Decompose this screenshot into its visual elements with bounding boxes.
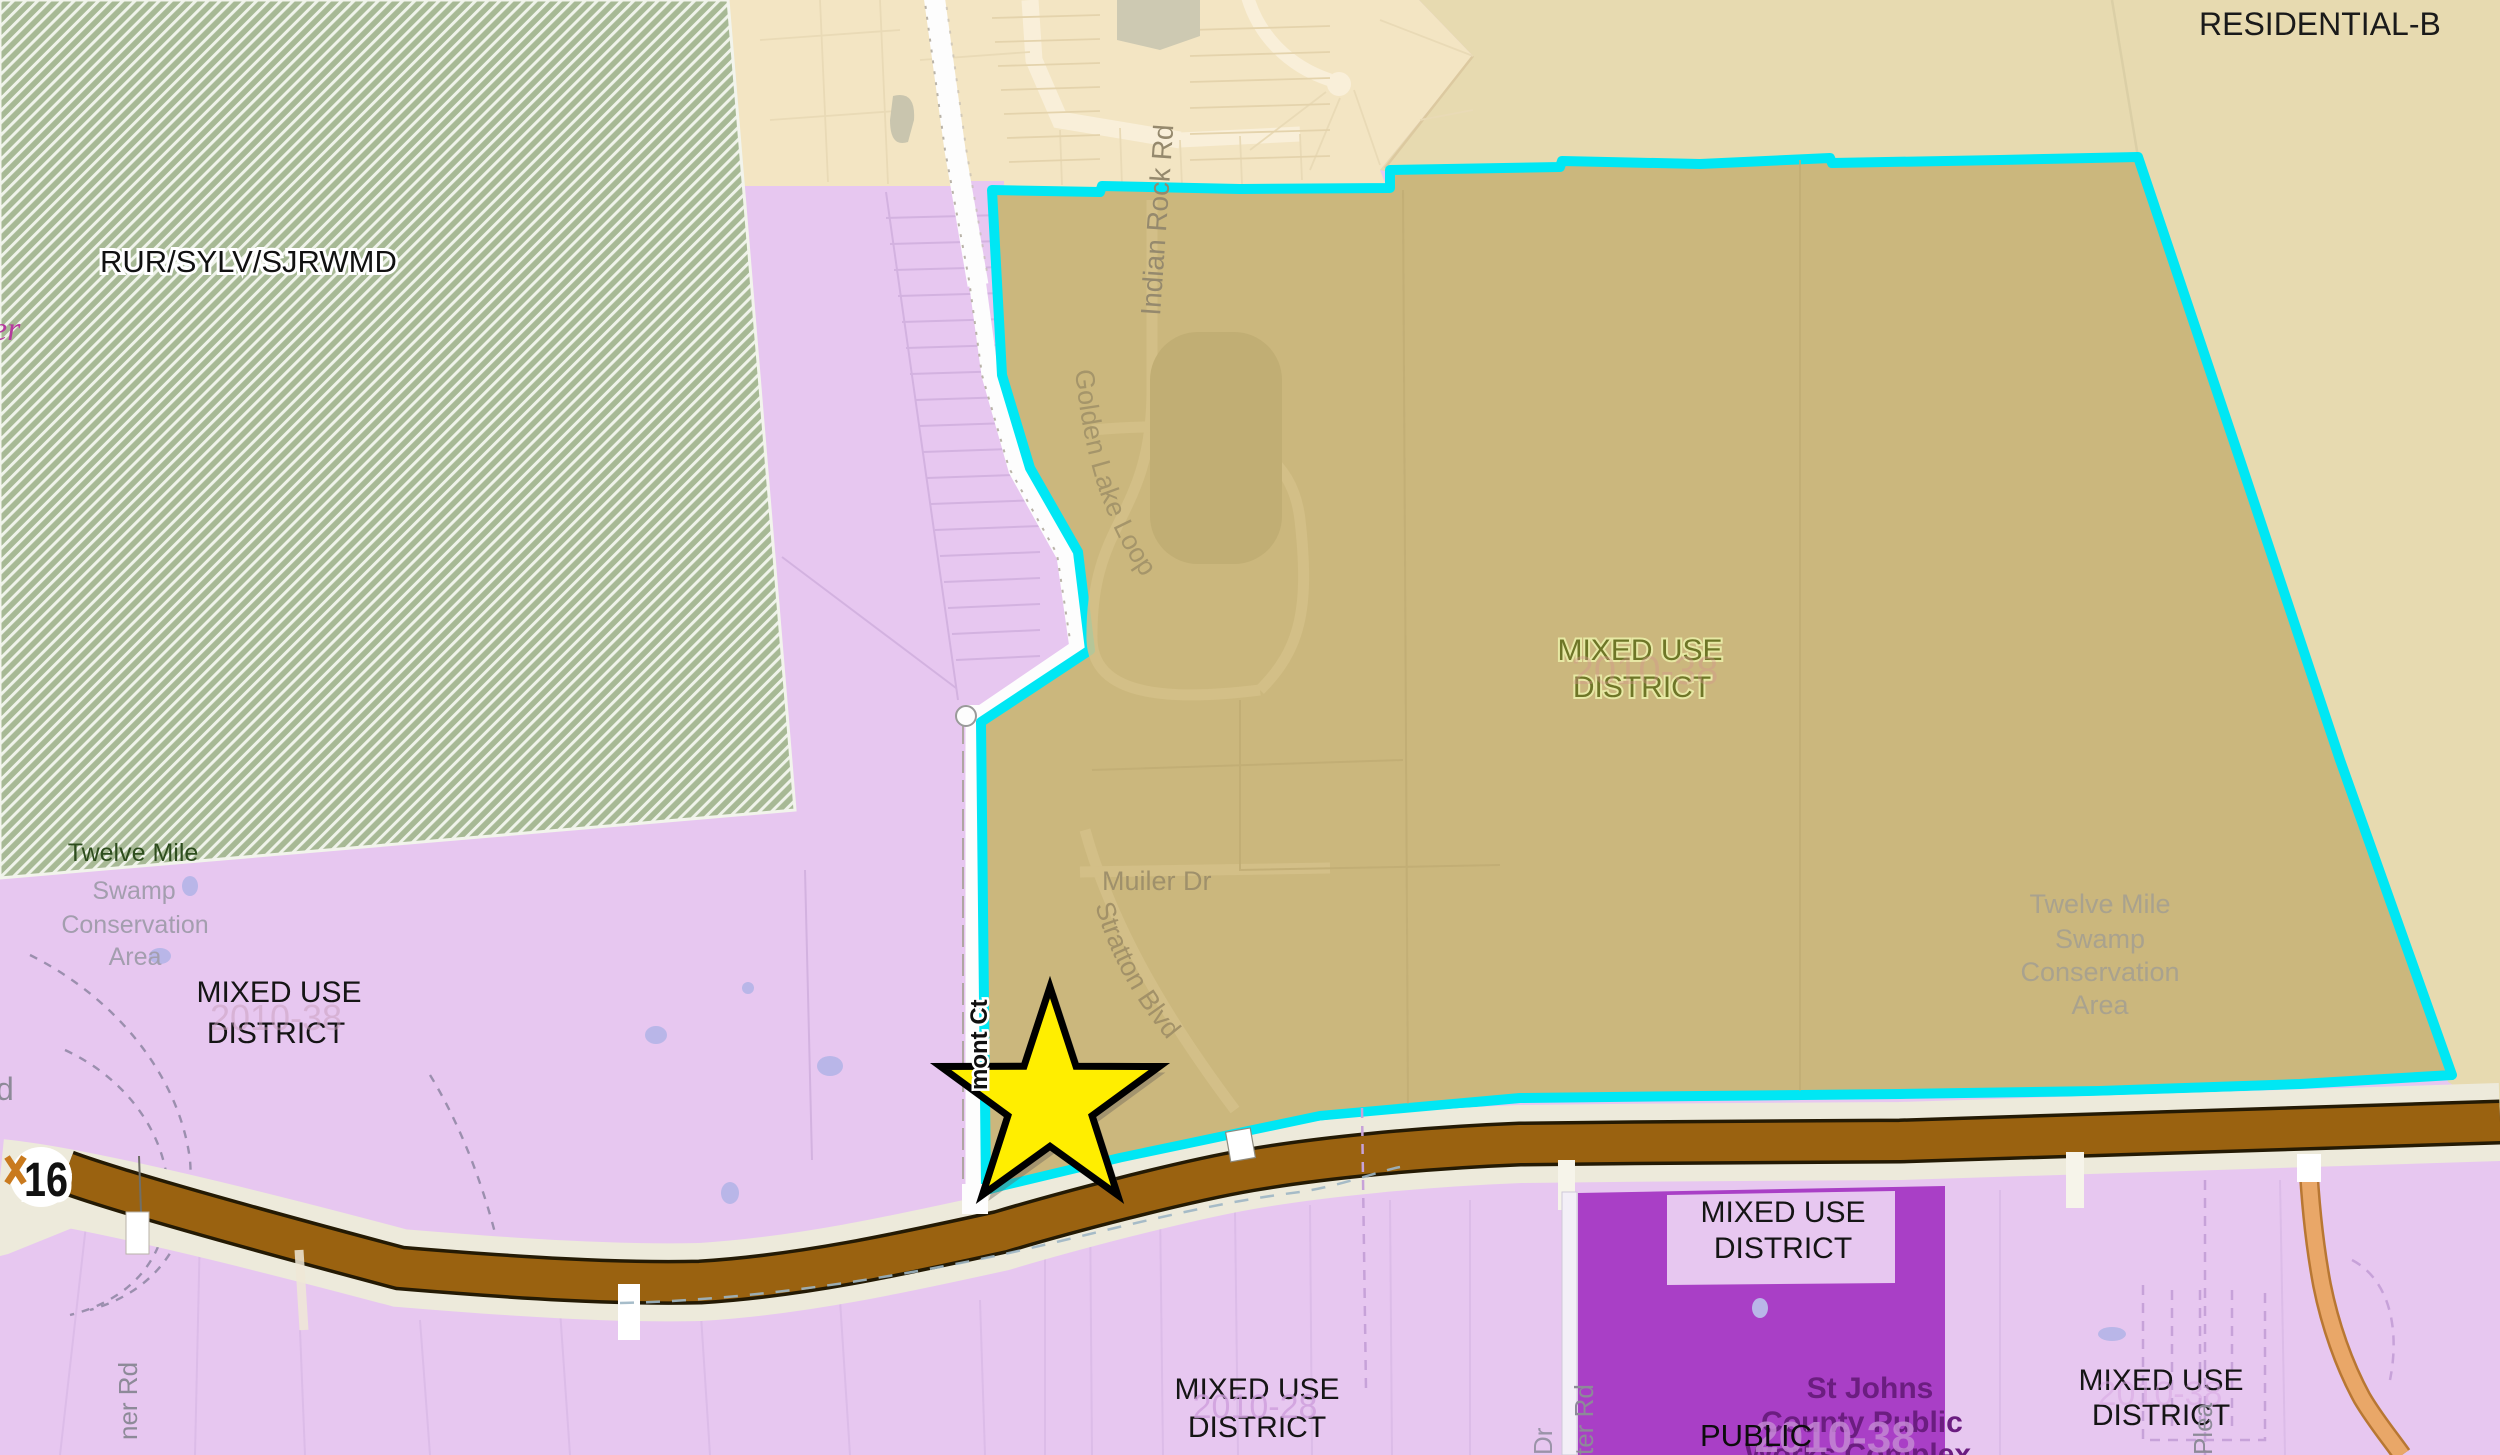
svg-text:16: 16 bbox=[24, 1154, 68, 1207]
svg-text:RUR/SYLV/SJRWMD: RUR/SYLV/SJRWMD bbox=[100, 244, 397, 279]
svg-text:ter Rd: ter Rd bbox=[1569, 1384, 1599, 1455]
svg-text:Conservation: Conservation bbox=[61, 911, 208, 939]
svg-text:2010-38: 2010-38 bbox=[1572, 649, 1719, 693]
svg-text:Swamp: Swamp bbox=[92, 877, 175, 905]
svg-text:2010-38: 2010-38 bbox=[210, 997, 342, 1038]
svg-text:Muiler Dr: Muiler Dr bbox=[1102, 866, 1212, 896]
svg-text:2010-28: 2010-28 bbox=[1193, 1388, 1318, 1426]
svg-text:ner Rd: ner Rd bbox=[113, 1362, 143, 1440]
svg-text:Plea: Plea bbox=[2188, 1402, 2218, 1455]
svg-text:Conservation: Conservation bbox=[2020, 957, 2179, 987]
svg-text:Swamp: Swamp bbox=[2055, 924, 2145, 954]
svg-text:Area: Area bbox=[2071, 990, 2129, 1020]
svg-text:Twelve Mile: Twelve Mile bbox=[68, 839, 199, 867]
svg-text:d: d bbox=[0, 1071, 14, 1107]
svg-text:PUBLIC: PUBLIC bbox=[1700, 1418, 1812, 1453]
svg-text:Twelve Mile: Twelve Mile bbox=[2029, 889, 2170, 919]
svg-text:Dr: Dr bbox=[1528, 1427, 1558, 1455]
svg-text:er: er bbox=[0, 311, 21, 348]
svg-text:mont Ct: mont Ct bbox=[966, 999, 993, 1090]
svg-text:St Johns: St Johns bbox=[1807, 1372, 1934, 1405]
svg-text:RESIDENTIAL-B: RESIDENTIAL-B bbox=[2199, 6, 2441, 42]
svg-text:DISTRICT: DISTRICT bbox=[1714, 1232, 1852, 1265]
svg-text:MIXED USE: MIXED USE bbox=[1700, 1196, 1865, 1229]
svg-text:Area: Area bbox=[109, 943, 162, 971]
